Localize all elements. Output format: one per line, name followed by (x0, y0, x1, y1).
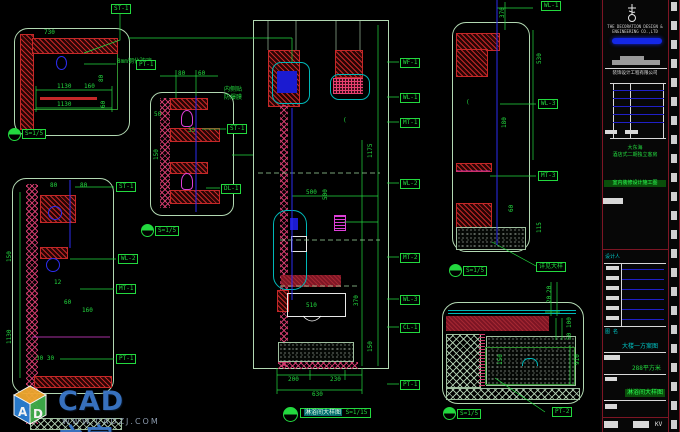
table-row-line (622, 279, 664, 280)
dimension-label: 35 (188, 128, 195, 134)
dimension-label: 510 (306, 303, 317, 309)
detail-scale-f: S=1/5 (457, 409, 481, 419)
dimension-label: 530 (537, 53, 543, 64)
finish-callout: MT-1 (400, 118, 420, 128)
detail-bubble-a (8, 128, 21, 141)
detail-scale-e: S=1/5 (463, 266, 487, 276)
frame-line (602, 0, 603, 432)
finish-callout: WL-3 (538, 99, 558, 109)
dimension-label: 630 (312, 392, 323, 398)
dimension-and-leader-linework (0, 0, 680, 432)
main-drawing-title: 淋浴间大样图 S=1/15 (300, 408, 371, 418)
finish-callout: MT-3 (538, 171, 558, 181)
dimension-label: 730 (44, 30, 55, 36)
divider (603, 249, 668, 250)
finish-callout: ST-1 (116, 182, 136, 192)
binding-edge-marks (671, 2, 677, 430)
stamp-box (603, 198, 623, 204)
project-name-line1: 大东海 (604, 146, 666, 151)
staff-label: 设计人 (605, 255, 620, 260)
divider (605, 68, 667, 69)
signature-box (625, 130, 638, 134)
dimension-label: 20 (547, 286, 553, 293)
dimension-label: 60 (198, 71, 205, 77)
watermark-url: WWW.CADZJ.COM (62, 417, 160, 426)
label-cell (606, 266, 619, 270)
cube-letter-d: D (33, 407, 43, 421)
dimension-label: 80 (80, 183, 87, 189)
label-cell (605, 377, 617, 381)
dimension-label: 12 (54, 280, 61, 286)
dimension-label: 1130 (57, 84, 71, 90)
table-row-line (622, 309, 664, 310)
label-cell (604, 355, 620, 360)
cube-letter-a: A (18, 405, 28, 419)
dimension-label: 80 (178, 71, 185, 77)
dimension-label: 1130 (7, 330, 13, 344)
company-name-cn: 装饰设计工程有限公司 (604, 72, 666, 77)
company-logo-icon (620, 2, 644, 24)
detail-scale-c: S=1/5 (155, 226, 179, 236)
finish-callout: WL-3 (400, 295, 420, 305)
finish-callout: PT-1 (400, 380, 420, 390)
table-line (604, 326, 666, 327)
building-silhouette (612, 60, 660, 65)
detail-bubble-e (449, 264, 462, 277)
label-cell (605, 404, 617, 409)
dimension-label: 910 (575, 354, 581, 365)
cad-cube-logo: A D (6, 380, 54, 430)
finish-callout: PT-1 (136, 60, 156, 70)
dimension-label: 150 (498, 354, 504, 365)
finish-callout: ST-1 (227, 124, 247, 134)
label-cell (606, 296, 619, 300)
finish-callout: WL-2 (118, 254, 138, 264)
table-line (621, 263, 622, 326)
dimension-label: 160 (84, 84, 95, 90)
dimension-label: 150 (154, 149, 160, 160)
table-row-line (622, 289, 664, 290)
label-cell (606, 316, 619, 320)
dimension-label: 1130 (57, 102, 71, 108)
break-arrow: ( (343, 118, 347, 124)
main-title-name: 淋浴间大样图 (304, 409, 342, 416)
main-title-bubble (283, 407, 298, 422)
project-name-line2: 酒店式二期独立客房 (602, 153, 668, 158)
dimension-label: 370 (354, 295, 360, 306)
finish-callout: PT-1 (116, 354, 136, 364)
finish-callout: ST-1 (111, 4, 131, 14)
finish-callout: PT-2 (552, 407, 572, 417)
main-title-scale: S=1/15 (346, 409, 368, 416)
dimension-label: 160 (82, 308, 93, 314)
dimension-label: 60 (509, 205, 515, 212)
break-arrow: ( (466, 100, 470, 106)
signature-box (605, 130, 617, 134)
table-row-line (622, 269, 664, 270)
finish-callout: CL-1 (400, 323, 420, 333)
drawing-name-label: 图 名 (605, 330, 618, 335)
finish-callout: DL-1 (221, 184, 241, 194)
table-row-line (613, 106, 664, 107)
scheme-name: 大楼一方案图 (622, 344, 658, 350)
title-block: THE DECORATION DESIGN & ENGINEERING CO.,… (600, 0, 680, 432)
project-name-line3: 室内装修设计施工图 (604, 180, 666, 187)
dimension-label: 50 (567, 333, 573, 340)
finish-callout: 详见大样 (536, 262, 566, 272)
table-line (604, 263, 666, 264)
table-row-line (613, 98, 664, 99)
divider (604, 352, 666, 353)
table-row-line (613, 114, 664, 115)
dimension-label: 20 (547, 296, 553, 303)
dimension-label: 150 (7, 251, 13, 262)
divider (604, 374, 666, 375)
dimension-label: 80 (99, 75, 105, 82)
divider (603, 417, 668, 418)
finish-callout: WF-1 (400, 58, 420, 68)
dimension-label: 100 (567, 317, 573, 328)
film-note-line2: 防爆膜 (224, 95, 242, 101)
number-box (633, 421, 649, 428)
label-cell (606, 276, 619, 280)
dimension-label: 180 (502, 117, 508, 128)
table-line (610, 83, 666, 84)
label-cell (606, 306, 619, 310)
detail-bubble-c (141, 224, 154, 237)
detail-scale-a: S=1/5 (22, 129, 46, 139)
dimension-label: 370 (500, 7, 506, 18)
label-cell (606, 286, 619, 290)
watermark: A D CAD之家 WWW.CADZJ.COM (6, 380, 54, 432)
dimension-label: 500 (323, 189, 329, 200)
finish-callout: MT-2 (400, 253, 420, 263)
company-name-en-2: ENGINEERING CO.,LTD (604, 30, 666, 34)
dimension-label: 50 (154, 112, 161, 118)
number-box (604, 421, 618, 428)
finish-callout: WL-1 (541, 1, 561, 11)
cad-drawing-sheet: 730 1130 1130 160 80 60 8mm钢化玻璃 ST-1 S=1… (0, 0, 680, 432)
dimension-label: 230 (330, 377, 341, 383)
table-row-line (622, 319, 664, 320)
table-row-line (613, 90, 664, 91)
table-row-line (622, 299, 664, 300)
unit-text: KV (655, 422, 662, 428)
table-line (610, 138, 666, 139)
table-line (663, 83, 664, 138)
dimension-label: 1175 (368, 144, 374, 158)
logo-blue-bar (612, 38, 662, 44)
finish-callout: MT-1 (116, 284, 136, 294)
sheet-name: 淋浴间大样图 (625, 389, 665, 397)
dimension-label: 150 (368, 341, 374, 352)
frame-line (668, 0, 669, 432)
area-value: 288平方米 (632, 366, 661, 372)
dimension-label: 30 30 (36, 356, 54, 362)
film-note-line1: 内侧贴 (224, 87, 242, 93)
dimension-label: 115 (537, 222, 543, 233)
divider (604, 400, 666, 401)
finish-callout: WL-1 (400, 93, 420, 103)
dimension-label: 60 (101, 101, 107, 108)
dimension-label: 80 (50, 183, 57, 189)
finish-callout: WL-2 (400, 179, 420, 189)
table-row-line (613, 122, 664, 123)
dimension-label: 500 (306, 190, 317, 196)
detail-bubble-f (443, 407, 456, 420)
dimension-label: 60 (64, 300, 71, 306)
dimension-label: 200 (288, 377, 299, 383)
